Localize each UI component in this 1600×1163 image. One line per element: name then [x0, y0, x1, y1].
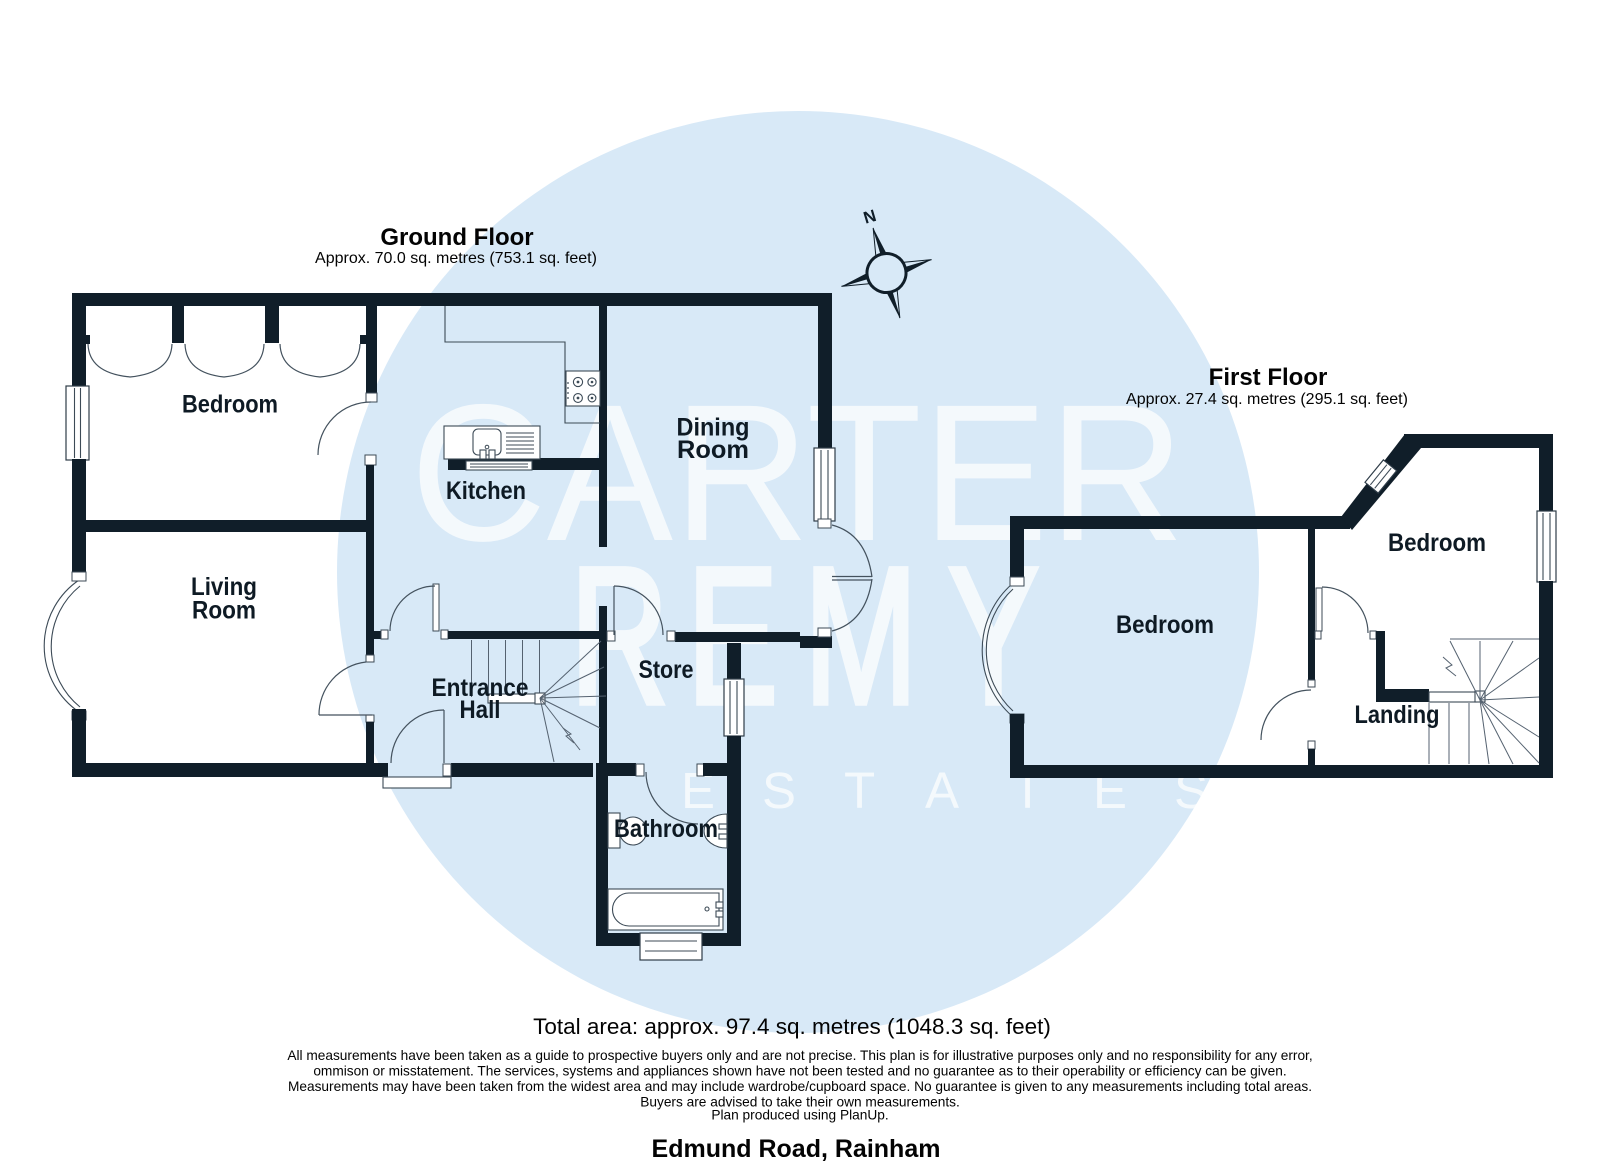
svg-text:Measurements may have been tak: Measurements may have been taken from th…: [288, 1079, 1312, 1094]
svg-text:Landing: Landing: [1355, 701, 1440, 729]
svg-text:Plan produced using PlanUp.: Plan produced using PlanUp.: [711, 1108, 888, 1123]
svg-text:Total area: approx. 97.4 sq. m: Total area: approx. 97.4 sq. metres (104…: [533, 1014, 1051, 1039]
svg-text:Edmund Road, Rainham: Edmund Road, Rainham: [652, 1135, 941, 1163]
svg-text:Bathroom: Bathroom: [614, 815, 718, 843]
svg-text:Bedroom: Bedroom: [182, 391, 278, 419]
svg-text:ommison or misstatement. The s: ommison or misstatement. The services, s…: [313, 1064, 1286, 1079]
svg-text:Bedroom: Bedroom: [1388, 529, 1486, 557]
svg-text:Bedroom: Bedroom: [1116, 611, 1214, 639]
svg-text:Kitchen: Kitchen: [446, 477, 526, 505]
svg-text:Room: Room: [192, 597, 256, 625]
svg-text:All measurements have been tak: All measurements have been taken as a gu…: [287, 1048, 1312, 1063]
svg-text:Approx. 70.0 sq. metres (753.1: Approx. 70.0 sq. metres (753.1 sq. feet): [315, 250, 597, 267]
svg-text:Y: Y: [948, 527, 1039, 745]
svg-text:First Floor: First Floor: [1209, 364, 1328, 391]
svg-text:CARTER: CARTER: [410, 364, 1185, 582]
svg-text:Room: Room: [677, 436, 749, 464]
svg-text:Approx. 27.4 sq. metres (295.1: Approx. 27.4 sq. metres (295.1 sq. feet): [1126, 391, 1408, 408]
svg-text:Ground Floor: Ground Floor: [380, 224, 533, 251]
svg-text:Store: Store: [639, 656, 694, 684]
svg-text:S: S: [762, 762, 796, 819]
svg-text:A: A: [925, 762, 959, 819]
svg-text:T: T: [844, 762, 875, 819]
svg-text:Hall: Hall: [460, 696, 501, 724]
